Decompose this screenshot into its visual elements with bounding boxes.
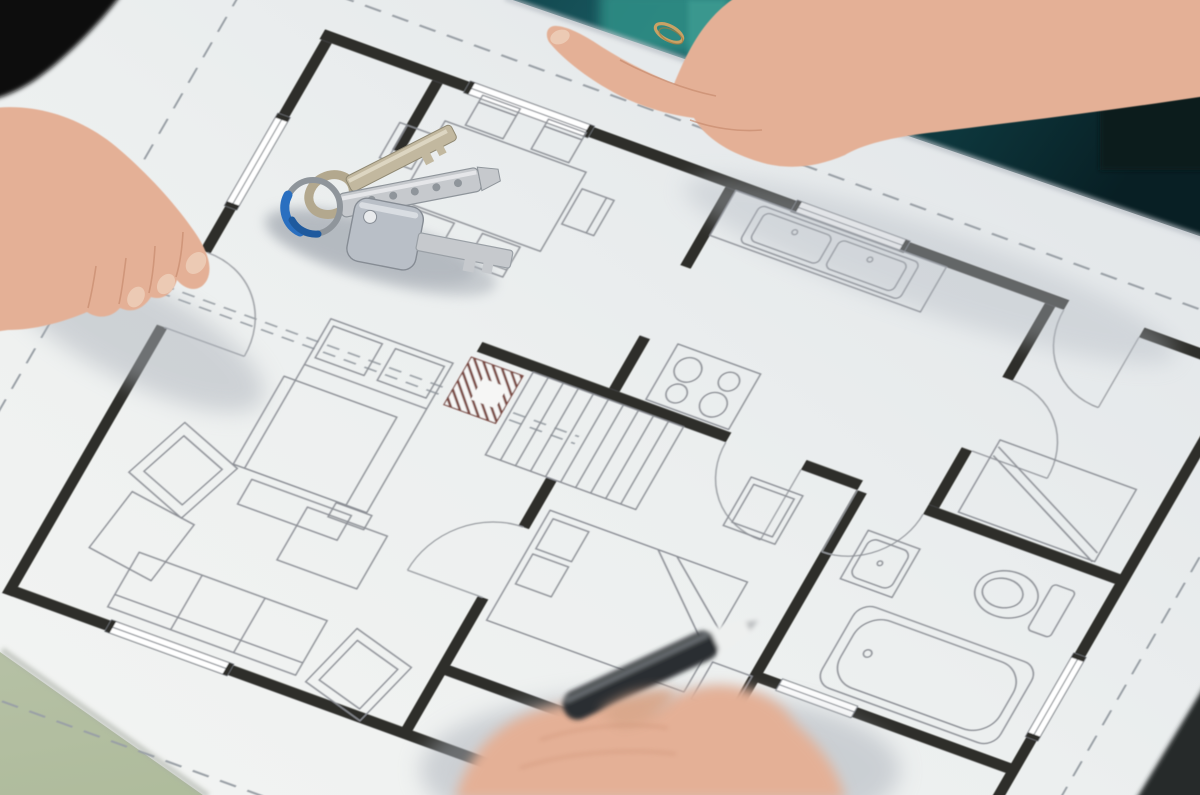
scene — [0, 0, 1200, 795]
photo-floorplan-review — [0, 0, 1200, 795]
